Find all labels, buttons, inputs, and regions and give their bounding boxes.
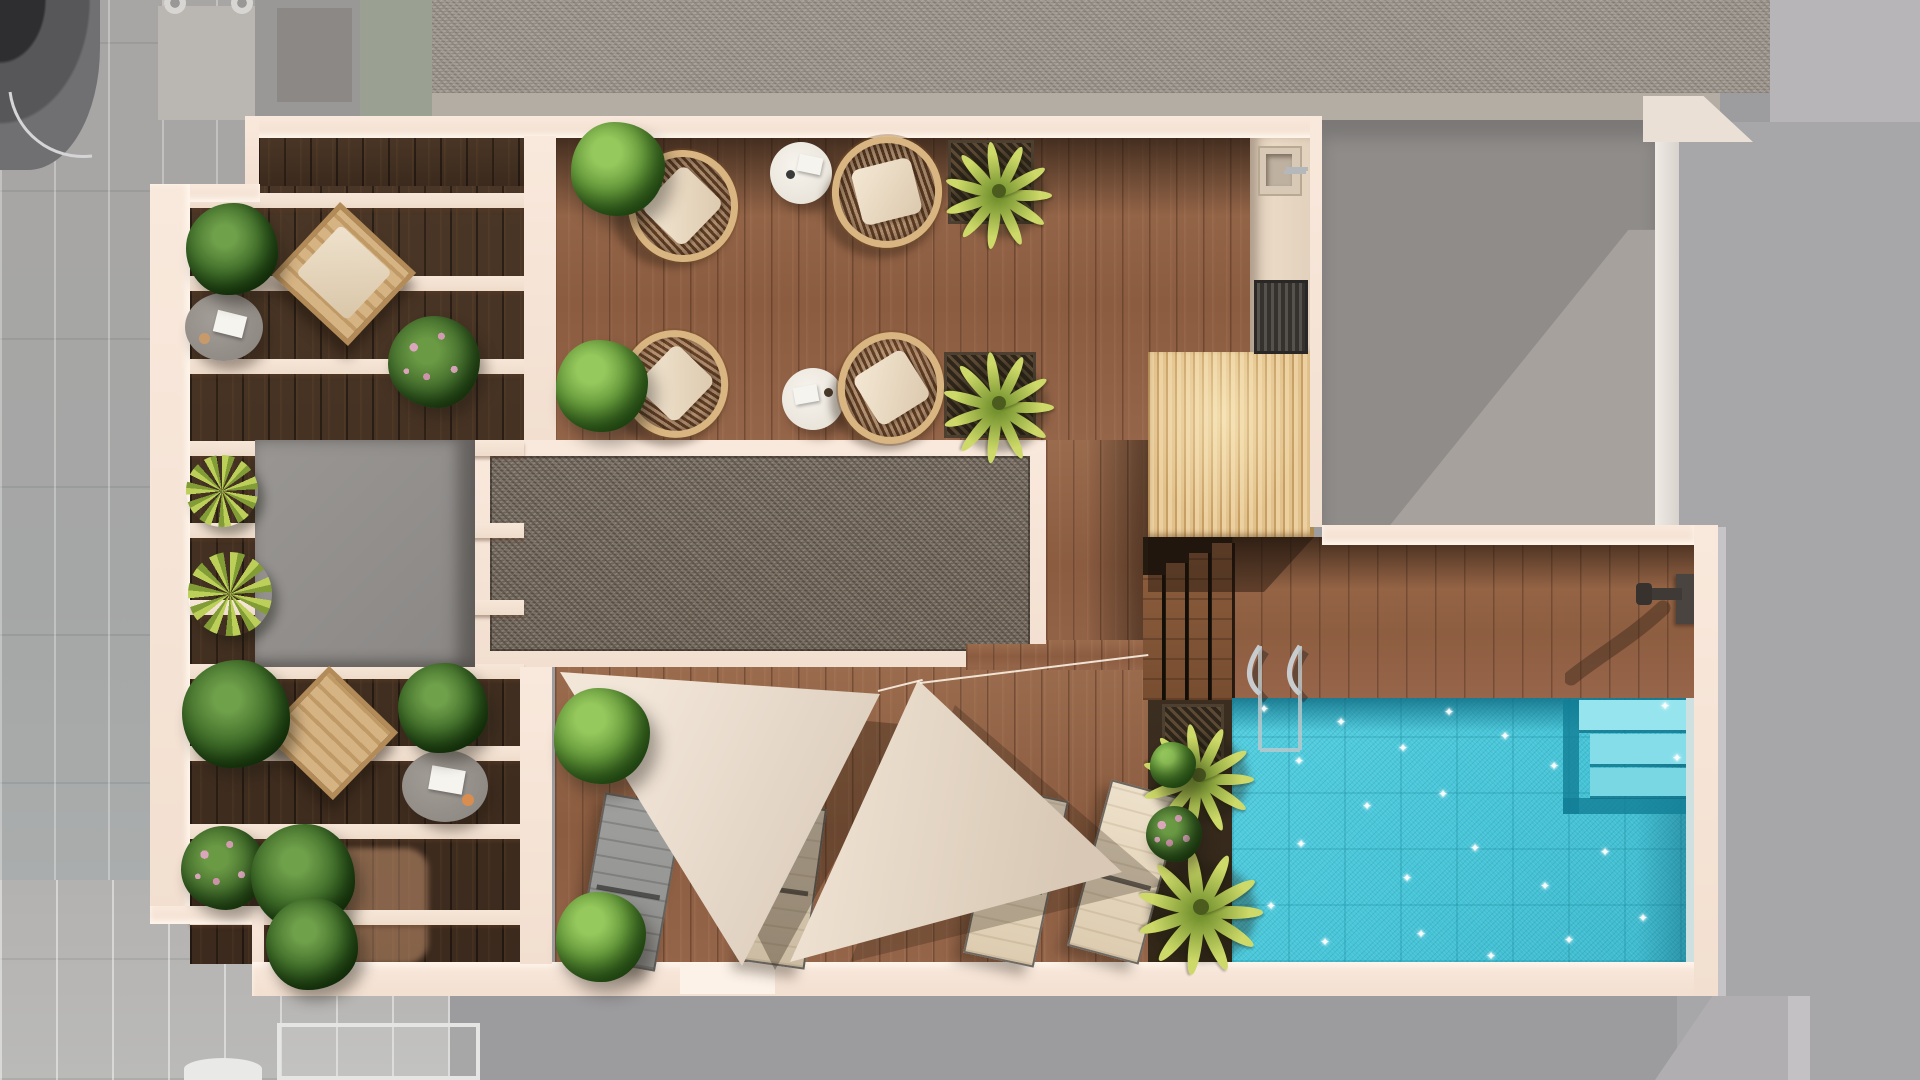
pool-top-wall [1322,525,1694,545]
bottom-left-jog [150,906,264,924]
water-sparkle-icon: ✦ [1470,842,1480,854]
water-sparkle-icon: ✦ [1320,936,1330,948]
top-wall [245,116,1322,138]
slatted-pergola-roof [1148,352,1314,537]
palm-plant [948,140,1048,240]
stair-bulkhead-roof [255,440,475,667]
bottom-wall-gate [680,964,775,994]
rooftop-terrace-plan: ✦✦✦✦✦✦✦✦✦✦✦✦✦✦✦✦✦✦✦✦✦✦ [0,0,1920,1080]
leafy-plant [182,660,290,768]
water-sparkle-icon: ✦ [1638,912,1648,924]
water-sparkle-icon: ✦ [1660,700,1670,712]
water-sparkle-icon: ✦ [1564,934,1574,946]
roof-block-inner [277,8,352,102]
palm-plant [946,350,1050,454]
sink-faucet-icon [1284,170,1306,174]
left-wall [150,184,190,924]
gravel-bed [490,456,1030,651]
pool-step [1590,768,1688,796]
water-sparkle-icon: ✦ [1438,788,1448,800]
lightwell-right-wall [1655,120,1679,545]
water-sparkle-icon: ✦ [1266,900,1276,912]
palm-core [992,184,1006,198]
bbq-grill [1254,280,1308,354]
open-book [428,765,466,795]
bowl-icon [462,794,474,806]
coffee-cup-icon [786,170,795,179]
spiky-plant [186,455,258,527]
water-sparkle-icon: ✦ [1600,846,1610,858]
lightwell-void [1322,120,1655,527]
lower-terrace-chair [184,1058,262,1080]
dark-round-roof [0,0,100,170]
water-sparkle-icon: ✦ [1398,742,1408,754]
water-sparkle-icon: ✦ [1540,880,1550,892]
gray-coffee-table [402,750,488,822]
pool-ladder-icon [1242,638,1332,768]
palm-plant [1142,848,1258,964]
table-tray [796,154,823,176]
flower-plant [1146,806,1202,862]
kitchen-side-wall [1310,116,1322,527]
far-corner-roof [1770,0,1920,122]
leafy-plant [186,203,278,295]
stair-tread [1143,575,1162,700]
water-sparkle-icon: ✦ [1486,950,1496,962]
gray-coffee-table [185,293,263,361]
water-sparkle-icon: ✦ [1444,706,1454,718]
pool-steps-shadow-v [1563,700,1579,814]
pool-coping-strip [1686,698,1694,962]
right-wall-cap-strip [1718,527,1726,996]
mid-wall-lower [520,667,552,964]
bottom-wall [252,962,1714,996]
neighbor-roof-green-slab [360,0,432,122]
lower-terrace-glass-rail [277,1023,480,1080]
pergola-floor-top [258,136,528,186]
water-sparkle-icon: ✦ [1549,760,1559,772]
spiky-plant [188,552,272,636]
leafy-plant [398,663,488,753]
chair-cushion [851,156,924,226]
top-wall-jog-v [245,116,259,192]
water-sparkle-icon: ✦ [1402,872,1412,884]
mid-wall-upper [524,136,556,440]
pool-step [1579,700,1691,730]
water-sparkle-icon: ✦ [1416,928,1426,940]
water-sparkle-icon: ✦ [1296,838,1306,850]
water-sparkle-icon: ✦ [1500,730,1510,742]
water-sparkle-icon: ✦ [1336,716,1346,728]
cup-icon [199,333,210,344]
pool-steps-shadow-h [1563,798,1694,814]
water-sparkle-icon: ✦ [1672,752,1682,764]
cream-wall-cap [1643,96,1753,142]
wall-end-strip [1788,996,1810,1080]
connector-shadow [1085,440,1148,667]
water-sparkle-icon: ✦ [1362,800,1372,812]
frame-wood-notch [966,644,1046,667]
open-book [213,310,247,339]
flower-plant [388,316,480,408]
leafy-plant [266,898,358,990]
table-tray [793,384,820,405]
lightwell-sun-wedge [1322,120,1655,527]
shower-shadow [1565,600,1677,695]
neighbor-gravel-roof [430,0,1770,93]
chair-cushion [851,347,931,426]
right-wall [1694,525,1718,996]
roof-slab [158,6,255,120]
hanging-chair-cushion [296,225,392,321]
